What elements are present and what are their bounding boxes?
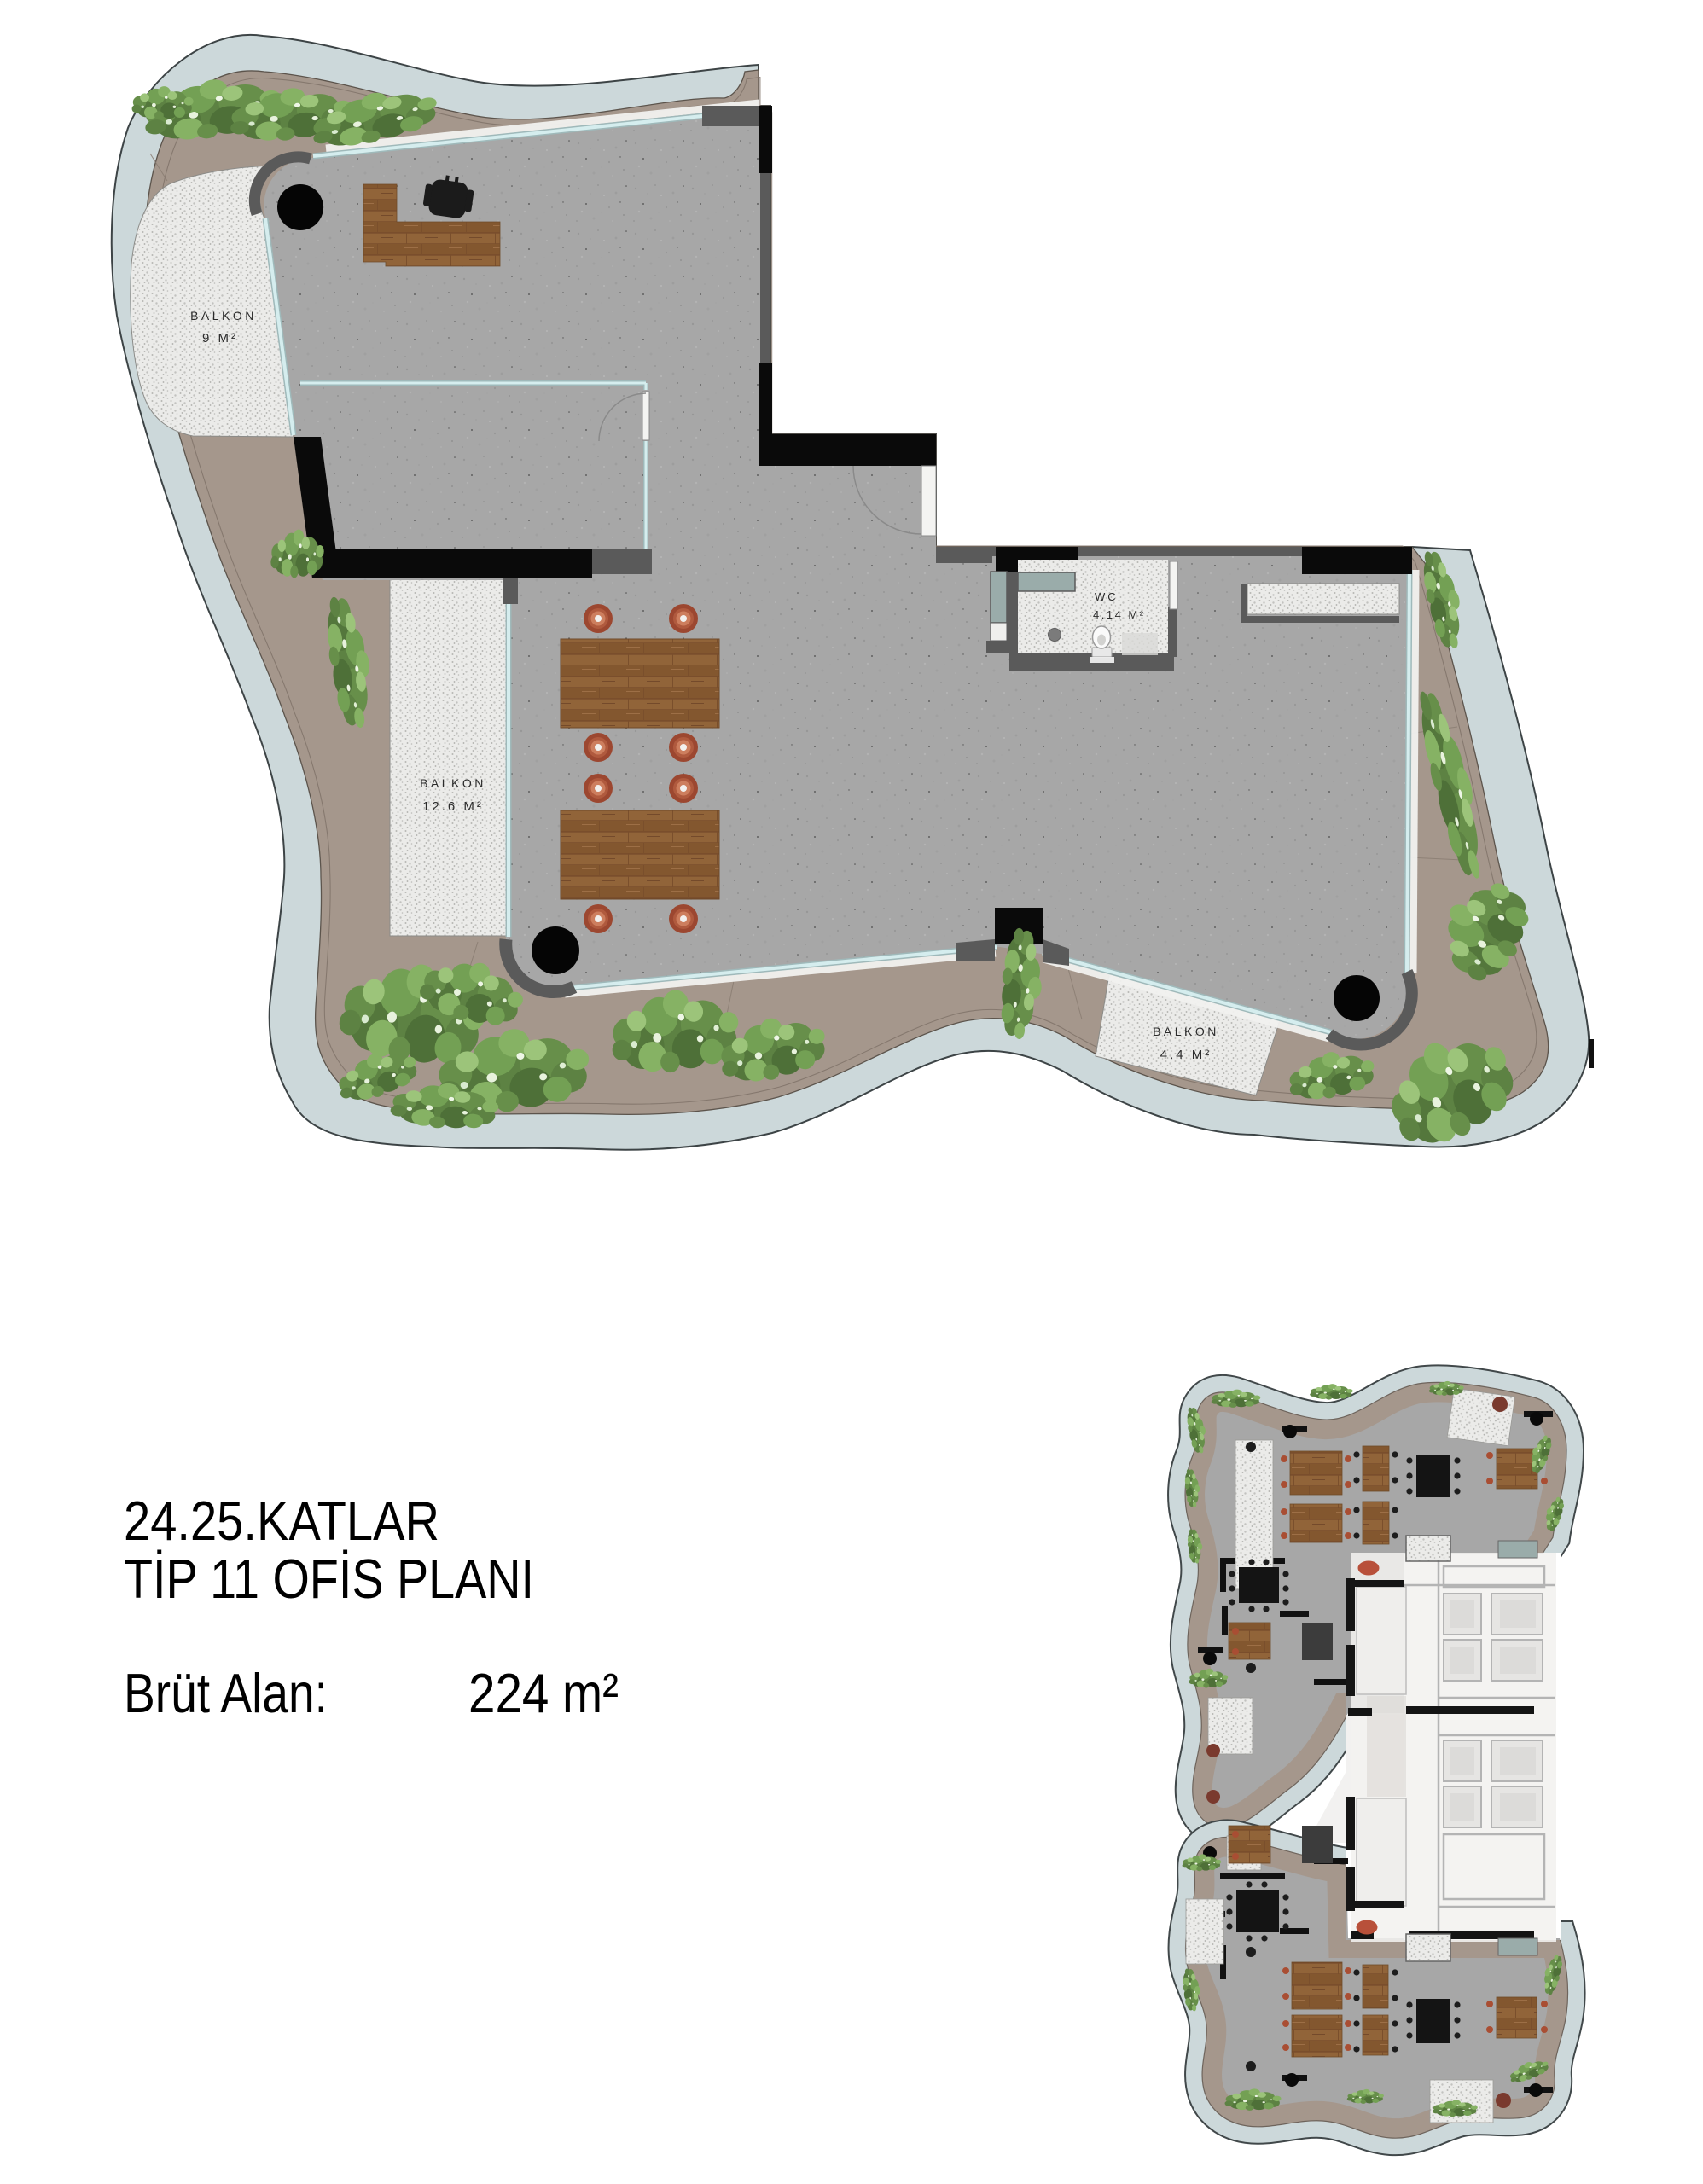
svg-text:Brüt Alan:: Brüt Alan:: [124, 1662, 328, 1724]
svg-text:4.14 M²: 4.14 M²: [1093, 608, 1146, 621]
svg-text:TİP 11 OFİS PLANI: TİP 11 OFİS PLANI: [124, 1548, 534, 1610]
svg-text:9 M²: 9 M²: [202, 331, 238, 346]
svg-text:BALKON: BALKON: [420, 776, 486, 790]
svg-text:24.25.KATLAR: 24.25.KATLAR: [124, 1490, 439, 1552]
svg-text:BALKON: BALKON: [1153, 1025, 1219, 1038]
svg-text:12.6 M²: 12.6 M²: [422, 799, 484, 814]
svg-text:224 m²: 224 m²: [468, 1662, 619, 1724]
svg-text:BALKON: BALKON: [190, 309, 257, 322]
svg-text:4.4 M²: 4.4 M²: [1160, 1048, 1212, 1062]
svg-text:WC: WC: [1095, 590, 1119, 603]
